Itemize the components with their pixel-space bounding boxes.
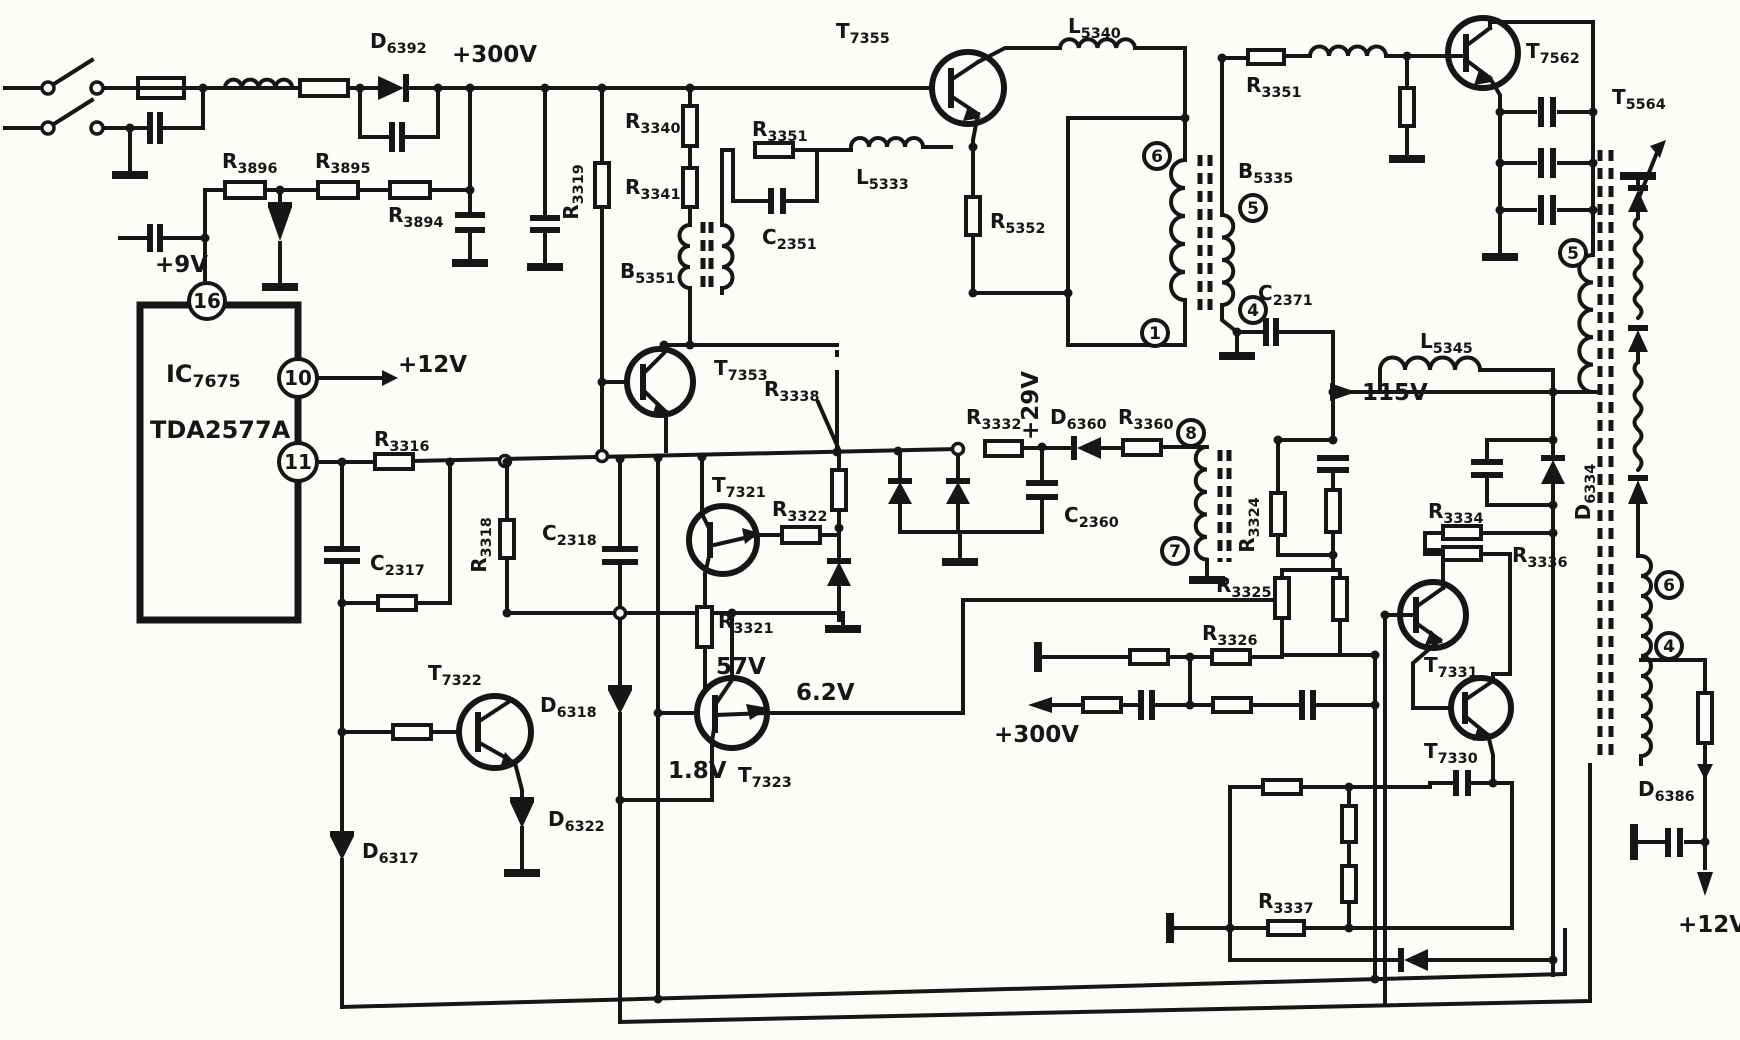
label-c2317: C2317 <box>370 551 425 579</box>
label-t7321: T7321 <box>712 473 766 501</box>
resistor-chain1 <box>1342 806 1356 842</box>
capacitor-d6392-bypass <box>392 122 402 152</box>
resistor-r3325b <box>1333 578 1347 620</box>
label-c2351: C2351 <box>762 225 817 253</box>
label-r3319: R3319 <box>559 164 587 219</box>
label-c2360: C2360 <box>1064 503 1119 531</box>
winding-number: 4 <box>1663 637 1675 657</box>
label-r3351-right: R3351 <box>1246 73 1301 101</box>
resistor-r3351-right <box>1248 50 1284 64</box>
resistor-t7562-base <box>1400 88 1414 126</box>
label-r3326: R3326 <box>1202 621 1257 649</box>
label-r3332: R3332 <box>966 405 1021 433</box>
wire <box>1278 392 1333 570</box>
arrow-12v <box>382 370 398 386</box>
resistor-r3334 <box>1443 526 1481 539</box>
label-r3325: R3325 <box>1216 573 1271 601</box>
label-12v-out: +12V <box>1678 912 1740 938</box>
resistor-r3318 <box>500 520 514 558</box>
label-c2371: C2371 <box>1258 281 1313 309</box>
ic-pin-10: 10 <box>279 359 317 397</box>
winding-8-7 <box>1196 447 1229 562</box>
resistor-300v-row2 <box>1213 698 1251 712</box>
arrow-12v-out <box>1697 872 1713 896</box>
label-r3338: R3338 <box>764 377 819 405</box>
label-d6317: D6317 <box>362 839 419 867</box>
winding-b5335-5: 5 <box>1240 195 1266 221</box>
capacitor-115v-node <box>1317 458 1349 470</box>
resistor-box-top <box>1263 780 1301 794</box>
label-r5352: R5352 <box>990 209 1045 237</box>
transistor-t7353 <box>627 349 693 416</box>
resistor-r3894 <box>390 182 430 198</box>
label-t7322: T7322 <box>428 661 482 689</box>
capacitor-c2360 <box>1026 483 1058 497</box>
resistor-r3325 <box>1275 578 1289 618</box>
ic-pin-16: 16 <box>189 283 225 319</box>
label-d6334: D6334 <box>1571 464 1599 521</box>
label-d6386: D6386 <box>1638 777 1695 805</box>
ic-pin-11: 11 <box>279 443 317 481</box>
zener-d6318 <box>608 688 632 714</box>
wire <box>342 930 1565 1007</box>
pin-11-number: 11 <box>284 450 312 474</box>
winding-number: 6 <box>1663 576 1675 596</box>
zener-d-ref <box>268 205 292 241</box>
transistor-t7321 <box>689 506 759 574</box>
label-9v: +9V <box>155 252 208 278</box>
zener-d6317 <box>330 834 354 860</box>
capacitor-rail-node <box>530 218 560 230</box>
winding-number: 1 <box>1149 324 1161 344</box>
resistor-t7322-base <box>393 725 431 739</box>
transistor-t7330 <box>1451 678 1511 741</box>
pin-16-number: 16 <box>193 289 221 313</box>
winding-number: 7 <box>1169 542 1181 562</box>
resistor-r3337 <box>1268 921 1304 935</box>
label-r3316: R3316 <box>374 427 429 455</box>
label-b5335: B5335 <box>1238 159 1293 187</box>
zener-pair <box>888 481 970 504</box>
capacitor-r3894-node <box>455 215 485 230</box>
coil-l5345 <box>1380 357 1480 370</box>
label-6-2v: 6.2V <box>796 680 855 706</box>
winding-number: 8 <box>1185 424 1197 444</box>
label-r3337: R3337 <box>1258 889 1313 917</box>
capacitor-c2351 <box>771 188 783 214</box>
resistor-r3324 <box>1271 493 1285 535</box>
zener-r3338-node <box>827 561 851 586</box>
winding-fly-6: 6 <box>1656 572 1682 598</box>
resistor-r3896 <box>225 182 265 198</box>
mains-switch <box>42 82 103 134</box>
winding-mid-8: 8 <box>1178 420 1204 446</box>
capacitor-line-filter <box>150 112 160 144</box>
label-l5345: L5345 <box>1420 329 1473 357</box>
label-d6392: D6392 <box>370 29 427 57</box>
resistor-300v-row1 <box>1083 698 1121 712</box>
arrow-d6386 <box>1697 764 1713 780</box>
winding-number: 5 <box>1247 199 1259 219</box>
resistor-r3326-left <box>1130 650 1168 664</box>
winding-b5335-6: 6 <box>1144 143 1170 169</box>
winding-mid-7: 7 <box>1162 538 1188 564</box>
resistor-r3326 <box>1212 650 1250 664</box>
label-r3336: R3336 <box>1512 543 1567 571</box>
resistor-r3338 <box>832 470 846 510</box>
label-r3340: R3340 <box>625 109 680 137</box>
label-t7353: T7353 <box>714 356 768 384</box>
resistor-r3351-left <box>755 143 793 157</box>
winding-fly-4: 4 <box>1656 633 1682 659</box>
label-l5340: L5340 <box>1068 14 1121 42</box>
resistor-chain2 <box>1342 866 1356 902</box>
resistor-r3321 <box>697 607 712 647</box>
resistor-r3316 <box>375 454 413 469</box>
input-resistor <box>300 80 348 96</box>
fuse <box>138 78 184 98</box>
resistor-r3332 <box>985 441 1022 456</box>
label-12v-ic: +12V <box>398 352 467 378</box>
label-r3334: R3334 <box>1428 499 1483 527</box>
wire <box>317 378 382 462</box>
label-115v: 115V <box>1362 380 1428 406</box>
transistor-t7355 <box>932 52 1004 124</box>
label-r3318: R3318 <box>467 517 495 572</box>
transistor-t7322 <box>459 696 531 800</box>
resistor-r3895 <box>318 182 358 198</box>
resistor-r3340 <box>683 106 697 146</box>
resistor-r3360 <box>1123 440 1161 455</box>
diode-bottom <box>1401 948 1428 972</box>
label-r3360: R3360 <box>1118 405 1173 433</box>
diode-d6392 <box>378 74 406 102</box>
switch-contact <box>91 82 103 94</box>
label-l5333: L5333 <box>856 165 909 193</box>
label-ic-ref: IC7675 <box>166 360 241 392</box>
label-d6322: D6322 <box>548 807 605 835</box>
label-d6360: D6360 <box>1050 405 1107 433</box>
transformer-b5351 <box>680 222 733 292</box>
resistor-r3319 <box>595 163 609 207</box>
capacitor-stack <box>1541 97 1553 225</box>
label-d6318: D6318 <box>540 693 597 721</box>
label-1-8v: 1.8V <box>668 758 727 784</box>
transistor-t7323 <box>697 678 769 748</box>
diode-d6334 <box>1541 458 1565 484</box>
ic-tda2577a-box <box>140 305 298 620</box>
capacitor-d6334 <box>1471 462 1503 475</box>
wire <box>900 449 1042 558</box>
label-c2318: C2318 <box>542 521 597 549</box>
wire <box>620 765 1590 1022</box>
coil-l5333 <box>851 138 923 147</box>
wire <box>1500 112 1593 210</box>
resistor-c2317-series <box>378 596 416 610</box>
wire <box>733 147 1068 293</box>
capacitor-c2318 <box>602 549 638 562</box>
schematic-page: 16 10 11 <box>0 0 1740 1040</box>
switch-contact <box>42 82 54 94</box>
transistor-t7562 <box>1448 18 1518 88</box>
switch-contact <box>42 122 54 134</box>
resistor-r5352 <box>966 197 980 235</box>
label-r3322: R3322 <box>772 497 827 525</box>
capacitor-c2371 <box>1266 318 1276 346</box>
capacitor-300v-row2 <box>1302 690 1313 720</box>
label-300v-top: +300V <box>452 42 537 68</box>
label-29v: +29V <box>1018 371 1044 440</box>
schematic-canvas: 16 10 11 <box>0 0 1740 1040</box>
label-t7562: T7562 <box>1526 39 1580 67</box>
label-r3341: R3341 <box>625 175 680 203</box>
winding-number: 5 <box>1567 244 1579 264</box>
label-57v: 57V <box>716 654 766 680</box>
arrow-300v-mid <box>1028 697 1052 713</box>
label-ic-part: TDA2577A <box>150 416 291 444</box>
diode-d6360 <box>1074 436 1101 460</box>
resistor-115v-node <box>1326 490 1340 532</box>
switch-contact <box>91 122 103 134</box>
label-r3351-left: R3351 <box>752 117 807 145</box>
wire <box>1282 570 1375 979</box>
resistor-r3322 <box>782 527 820 543</box>
pin-10-number: 10 <box>284 366 312 390</box>
capacitor-300v-row1 <box>1141 690 1152 720</box>
label-t7330: T7330 <box>1424 739 1478 767</box>
label-t7323: T7323 <box>738 763 792 791</box>
label-r3894: R3894 <box>388 203 443 231</box>
capacitor-9v <box>150 224 160 252</box>
label-t7331: T7331 <box>1424 653 1478 681</box>
winding-number: 6 <box>1151 147 1163 167</box>
capacitor-c2317 <box>324 549 360 561</box>
resistor-r3341 <box>683 168 697 207</box>
label-b5351: B5351 <box>620 259 675 287</box>
resistor-12v-rail <box>1698 693 1712 743</box>
winding-fly-5: 5 <box>1560 240 1586 266</box>
coil-t7562-base <box>1310 47 1386 57</box>
zener-d6322 <box>510 800 534 868</box>
capacitor-t7330-emitter <box>1456 770 1468 796</box>
label-r3324: R3324 <box>1235 497 1263 552</box>
label-t7355: T7355 <box>836 19 890 47</box>
label-r3895: R3895 <box>315 149 370 177</box>
label-300v-mid: +300V <box>994 722 1079 748</box>
winding-b5335-1: 1 <box>1142 320 1168 346</box>
resistor-r3336 <box>1443 547 1481 560</box>
label-r3896: R3896 <box>222 149 277 177</box>
label-t5564: T5564 <box>1612 85 1666 113</box>
